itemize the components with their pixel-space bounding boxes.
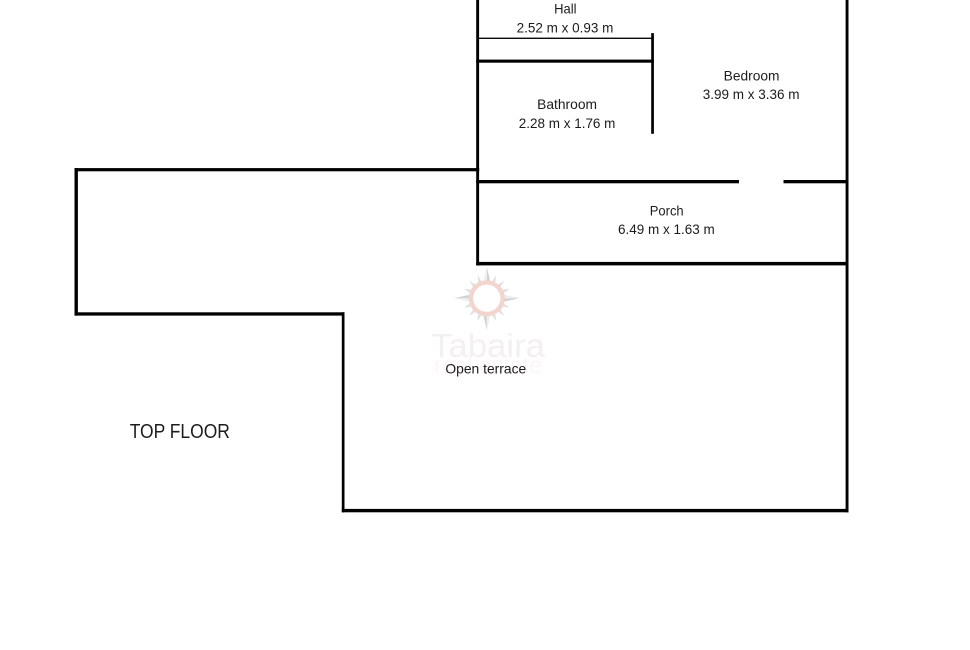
svg-text:6.49 m x 1.63 m: 6.49 m x 1.63 m [618,222,715,237]
svg-text:Porch: Porch [650,204,684,219]
svg-text:3.99 m x 3.36 m: 3.99 m x 3.36 m [703,87,800,102]
svg-text:Bathroom: Bathroom [537,97,597,112]
svg-text:Hall: Hall [554,2,576,17]
svg-text:2.28 m x 1.76 m: 2.28 m x 1.76 m [519,116,616,131]
svg-text:Open terrace: Open terrace [445,362,526,377]
svg-text:TOP FLOOR: TOP FLOOR [130,420,230,443]
svg-text:2.52 m x 0.93 m: 2.52 m x 0.93 m [517,20,614,35]
svg-text:Bedroom: Bedroom [724,69,780,84]
